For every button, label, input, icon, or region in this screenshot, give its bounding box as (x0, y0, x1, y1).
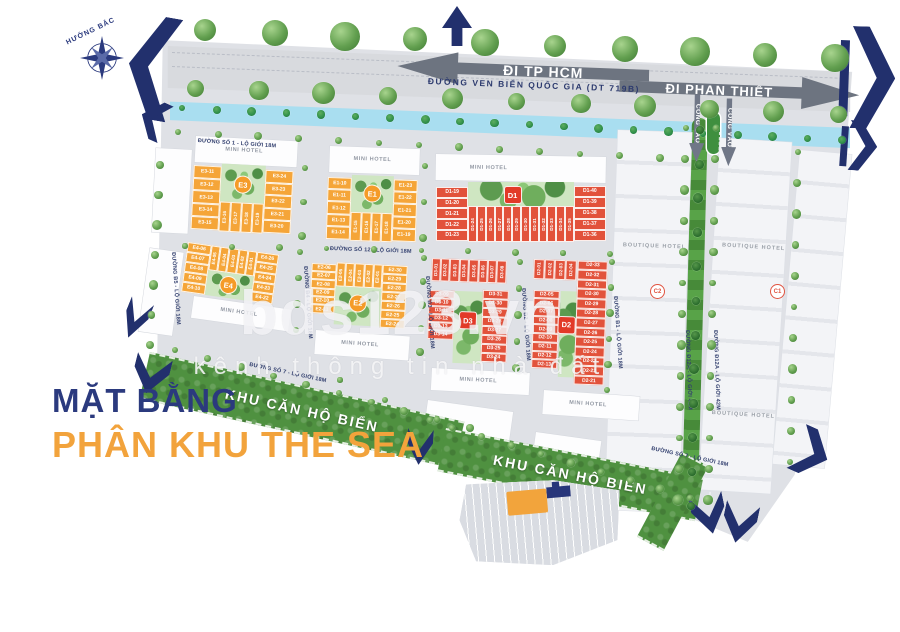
lot: E1-20 (392, 216, 417, 229)
tree (182, 243, 187, 248)
boutique-hotel-label: BOUTIQUE HOTEL (712, 410, 775, 420)
tree (442, 88, 463, 109)
lot: D2-21 (574, 375, 604, 386)
tree (146, 341, 155, 350)
tree (705, 465, 713, 473)
lot: D1-38 (574, 208, 606, 219)
tree (689, 364, 699, 374)
lot-label: E4-06 (192, 245, 206, 253)
lot-label: D1-33 (549, 218, 554, 231)
lot-label: E3-13 (199, 194, 213, 201)
lot-label: D3-01 (433, 264, 438, 277)
lot-group: D3-01D3-02D3-03D3-04D3-05D3-06D3-07D3-08 (431, 258, 507, 284)
tree (175, 129, 181, 135)
lot-label: E2-01 (375, 270, 381, 283)
lot-label: D1-24 (470, 218, 475, 231)
tree (421, 255, 427, 261)
hotel-label: MINI HOTEL (220, 307, 258, 318)
lot-label: D2-26 (584, 329, 598, 335)
tree (544, 35, 566, 57)
lot-label: D3-30 (488, 300, 502, 306)
tree (792, 241, 799, 248)
lot-label: E4-07 (191, 255, 205, 263)
lot: D2-13 (532, 359, 557, 369)
lot-label: E4-09 (188, 274, 202, 282)
tree (154, 191, 163, 200)
lot-label: D2-06 (539, 300, 553, 306)
tree (508, 93, 525, 110)
lot-label: D3-06 (480, 265, 485, 278)
tree (709, 248, 717, 256)
lot-group: E2-06E2-07E2-08E2-09E2-10E2-11 (309, 263, 337, 314)
lot-group: E1-15E1-16E1-17E1-18 (350, 212, 392, 242)
tree (421, 199, 428, 206)
lot-label: D2-21 (582, 377, 596, 383)
tree (179, 105, 186, 112)
tree (149, 280, 159, 290)
hotel-building: MINI HOTEL (436, 154, 606, 183)
tree (604, 361, 611, 368)
tree (300, 199, 307, 206)
minimap-highlight (506, 488, 548, 515)
tree (419, 234, 427, 242)
lot-label: E3-18 (244, 212, 250, 225)
lot: D1-28 (503, 206, 512, 242)
lot-label: E4-08 (189, 265, 203, 273)
lot: E3-20 (262, 220, 291, 234)
tree (376, 140, 382, 146)
lot-label: D1-38 (583, 210, 597, 216)
tree (753, 43, 777, 67)
lot-label: E4-04 (220, 253, 227, 266)
lot-label: D2-31 (585, 281, 599, 287)
tree (156, 161, 164, 169)
lot-label: E1-13 (332, 217, 346, 223)
tree (675, 465, 683, 473)
lot-label: D2-13 (537, 361, 551, 367)
lot-label: E1-12 (332, 205, 346, 211)
block-badge-D2: D2 (557, 315, 576, 334)
lot: D1-19 (436, 187, 468, 198)
lot-group: E2-05E2-04E2-03E2-02E2-01 (336, 263, 383, 289)
lot-group: E1-10E1-11E1-12E1-13E1-14 (326, 177, 352, 240)
lot: E1-23 (393, 179, 418, 192)
lot: D1-25 (477, 206, 486, 242)
tree (298, 232, 306, 240)
tree (734, 131, 742, 139)
tree (763, 101, 784, 122)
tree (609, 259, 615, 265)
tree (821, 44, 849, 72)
lot-label: D2-32 (586, 272, 600, 278)
tower-badge-c2: C2 (650, 284, 665, 299)
tree (526, 121, 533, 128)
tree (630, 126, 637, 133)
lot: D1-21 (436, 208, 468, 219)
tree (293, 300, 301, 308)
tree (700, 100, 718, 118)
block-E4: E4-06E4-07E4-08E4-09E4-10E4-05E4-04E4-03… (181, 242, 279, 304)
tree (689, 399, 697, 407)
lot: E4-22 (250, 291, 273, 304)
lot-label: D1-28 (505, 218, 510, 231)
lot-label: D2-07 (539, 309, 553, 315)
lot: D1-22 (436, 219, 468, 230)
lot-label: D1-32 (540, 218, 545, 231)
road-label-b2: ĐƯỜNG B2 - LỘ GIỚI 18M (520, 288, 531, 361)
lot-label: E3-20 (270, 223, 284, 230)
lot-group: D3-31D3-30D3-29D3-28D3-27D3-26D3-25D3-24 (480, 290, 509, 363)
lot-label: E4-10 (187, 284, 201, 292)
lot-label: D1-39 (583, 199, 597, 205)
lot-label: D2-11 (538, 343, 552, 349)
lot-label: D1-19 (445, 189, 459, 195)
tree (692, 262, 702, 272)
direction-label-phanthiet: ĐI PHAN THIẾT (665, 80, 773, 99)
tree (567, 459, 574, 466)
tree (560, 123, 568, 131)
lot-label: E3-12 (200, 181, 214, 188)
lot-label: D2-12 (538, 352, 552, 358)
block-badge-D1: D1 (504, 186, 522, 204)
lot-group: E3-11E3-12E3-13E3-14E3-15 (191, 165, 222, 230)
lot-label: D1-40 (583, 188, 597, 194)
plan-title: MẶT BẰNG PHÂN KHU THE SEA (52, 382, 424, 466)
nav-arrow (849, 26, 897, 129)
tree (471, 29, 499, 57)
lot-label: D1-25 (479, 218, 484, 231)
lot-label: E1-15 (353, 220, 358, 232)
tree (416, 142, 423, 149)
lot: D1-40 (574, 186, 606, 197)
tree (215, 131, 222, 138)
block-D2: D2-01D2-02D2-03D2-04D2-05D2-06D2-07D2-08… (529, 256, 607, 389)
lot-label: D3-04 (461, 265, 466, 278)
tree (293, 327, 299, 333)
lot-label: E3-17 (233, 211, 239, 224)
plan-title-line2: PHÂN KHU THE SEA (52, 424, 424, 466)
tree (514, 338, 520, 344)
lot-label: D1-36 (583, 232, 597, 238)
tree (677, 340, 686, 349)
tree (673, 495, 682, 504)
tree (283, 109, 290, 116)
site-plan-map: MINI HOTELMINI HOTELMINI HOTELMINI HOTEL… (0, 0, 900, 632)
lot-label: E2-29 (388, 276, 402, 283)
lot-label: D3-09 (435, 291, 449, 297)
lot-label: E1-17 (374, 221, 379, 233)
tree (677, 372, 684, 379)
tree (676, 435, 683, 442)
tree (465, 248, 471, 254)
lot-label: E2-27 (387, 294, 401, 301)
tree (204, 355, 211, 362)
lot-label: E4-26 (260, 254, 274, 262)
tree (434, 416, 440, 422)
tree (330, 22, 359, 51)
lot-label: E3-14 (199, 207, 213, 214)
plan-title-line1: MẶT BẰNG (52, 382, 424, 420)
lot: E2-24 (380, 319, 405, 329)
lot: D3-08 (497, 260, 507, 284)
tree (270, 373, 276, 379)
tree (514, 311, 522, 319)
tree (706, 435, 713, 442)
hotel-label: MINI HOTEL (459, 376, 497, 384)
hotel-label: MINI HOTEL (569, 400, 607, 409)
tree (607, 251, 613, 257)
tree (676, 403, 684, 411)
lot: D1-26 (486, 206, 495, 242)
lot-label: D2-09 (539, 326, 553, 332)
tree (496, 146, 502, 152)
lot-label: D2-03 (558, 264, 563, 277)
lot-label: E2-08 (316, 281, 330, 288)
lot: D3-24 (480, 353, 507, 363)
compass-rose-icon (80, 36, 124, 80)
lot-label: E1-10 (333, 180, 347, 186)
lot-group: E3-16E3-17E3-18E3-19 (218, 201, 264, 233)
hotel-building: MINI HOTEL (314, 330, 409, 360)
tree (213, 106, 221, 114)
lot: E3-15 (191, 216, 220, 230)
nav-arrow (719, 500, 761, 546)
lot-label: E4-23 (256, 284, 270, 292)
lot-label: D1-35 (567, 218, 572, 231)
lot-label: E4-25 (259, 264, 273, 272)
lot-label: E2-07 (317, 272, 331, 279)
lot: D1-23 (436, 230, 468, 241)
lot-label: D2-25 (583, 339, 597, 345)
lot-label: E1-16 (363, 221, 368, 233)
tree (678, 310, 686, 318)
compass: HƯỚNG BẮC (62, 20, 142, 80)
lot-label: D3-10 (435, 299, 449, 305)
lot-label: D2-08 (539, 317, 553, 323)
tree (692, 297, 700, 305)
lot: D1-36 (574, 230, 606, 241)
tree (512, 249, 519, 256)
lot: E1-13 (326, 214, 351, 227)
tree (688, 433, 698, 443)
lot-label: E3-19 (255, 212, 261, 225)
lot-group: D1-24D1-25D1-26D1-27D1-28D1-29D1-30D1-31… (468, 206, 573, 242)
lot-label: E2-11 (315, 306, 328, 313)
lot: D1-32 (539, 206, 548, 242)
tree (449, 425, 455, 431)
block-badge-D3: D3 (459, 312, 478, 331)
tree (455, 143, 463, 151)
minimap-logo-mark (546, 481, 571, 499)
lot: D1-30 (521, 206, 530, 242)
tree (792, 209, 801, 218)
lot-label: D3-25 (487, 345, 501, 351)
hotel-building: MINI HOTEL (329, 146, 420, 175)
lot-label: E2-28 (387, 285, 401, 292)
lot-label: E2-04 (347, 269, 353, 282)
tree (768, 132, 777, 141)
tree (379, 87, 397, 105)
lot-label: E4-05 (211, 252, 218, 265)
lot-label: D1-30 (523, 218, 528, 231)
hotel-label: MINI HOTEL (353, 156, 391, 163)
lot-group: D2-01D2-02D2-03D2-04 (533, 259, 577, 281)
lot-label: D3-27 (487, 327, 501, 333)
lot-label: D2-02 (547, 263, 552, 276)
lot-label: D3-26 (487, 336, 501, 342)
lot: D1-24 (468, 206, 477, 242)
lot: D1-34 (556, 206, 565, 242)
tree (713, 125, 720, 132)
lot-label: D1-34 (558, 218, 563, 231)
lot-label: E2-05 (338, 268, 344, 281)
tree (703, 495, 712, 504)
tree (594, 124, 603, 133)
hotel-building: MINI HOTEL (431, 368, 530, 395)
lot: D1-37 (574, 219, 606, 230)
tree (152, 220, 162, 230)
tree (804, 135, 811, 142)
lot: D1-31 (530, 206, 539, 242)
lot-label: D1-27 (497, 218, 502, 231)
lot-label: D3-11 (435, 307, 449, 313)
tree (560, 250, 566, 256)
tree (710, 217, 717, 224)
tree (317, 110, 325, 118)
lot-label: E1-11 (333, 192, 346, 198)
lot-label: E3-24 (273, 173, 287, 180)
lot-label: E2-26 (386, 303, 400, 310)
lot: D2-02 (544, 259, 555, 280)
tree (696, 126, 704, 134)
lot: D2-01 (533, 259, 544, 280)
tree (710, 185, 719, 194)
tree (691, 331, 700, 340)
lot-label: D3-28 (488, 318, 502, 324)
block-E1: E1-10E1-11E1-12E1-13E1-14E1-15E1-16E1-17… (326, 174, 418, 243)
tower-badge-c1: C1 (770, 284, 785, 299)
lot-label: D2-30 (585, 291, 599, 297)
tree (324, 246, 330, 252)
tree (172, 347, 178, 353)
tree (536, 148, 543, 155)
lot-label: E3-22 (271, 198, 285, 205)
tree (422, 163, 428, 169)
lot-group: D1-19D1-20D1-21D1-22D1-23 (436, 187, 468, 241)
lot-label: E2-03 (356, 269, 362, 282)
lot-label: E1-14 (331, 230, 345, 236)
tree (683, 125, 690, 132)
lot-label: D3-02 (443, 264, 448, 277)
lot-label: D3-03 (452, 264, 457, 277)
tree (512, 364, 519, 371)
tree (656, 154, 664, 162)
lot-label: E2-24 (385, 320, 399, 327)
tree (490, 119, 498, 127)
lot-label: D2-28 (584, 310, 598, 316)
lot-group: D2-33D2-32D2-31D2-30D2-29D2-28D2-27D2-26… (574, 260, 608, 386)
lot-label: D3-14 (434, 332, 448, 338)
lot-label: E3-11 (201, 168, 214, 175)
lot-label: E3-21 (271, 211, 285, 218)
lot-label: D2-24 (583, 349, 597, 355)
lot-label: E4-01 (248, 257, 255, 270)
tree (456, 118, 463, 125)
tree (680, 37, 709, 66)
block-E3: E3-11E3-12E3-13E3-14E3-15E3-16E3-17E3-18… (190, 162, 293, 235)
lot-label: D2-01 (536, 263, 541, 276)
tree (680, 185, 689, 194)
block-D3: D3-01D3-02D3-03D3-04D3-05D3-06D3-07D3-08… (426, 258, 510, 367)
lot-group: E1-23E1-22E1-21E1-20E1-19 (391, 179, 417, 242)
lot: E2-11 (309, 304, 334, 314)
lot-label: E1-20 (397, 220, 411, 226)
block-E2: E2-06E2-07E2-08E2-09E2-10E2-11E2-05E2-04… (309, 260, 408, 331)
lot: E1-10 (327, 177, 352, 190)
tree (788, 396, 795, 403)
tree (312, 82, 335, 105)
tree (612, 36, 638, 62)
lot-label: E2-25 (386, 312, 400, 319)
lot-label: D2-27 (584, 320, 598, 326)
tree (604, 387, 610, 393)
tree (680, 217, 687, 224)
lot-label: E2-09 (316, 289, 330, 296)
tree (297, 249, 303, 255)
tree (276, 244, 283, 251)
lot: E1-22 (393, 191, 418, 204)
lot-label: E3-16 (222, 210, 228, 223)
tree (352, 113, 359, 120)
lot-label: D1-23 (445, 232, 459, 238)
tree (403, 27, 427, 51)
tree (634, 95, 657, 118)
lot-group: E3-24E3-23E3-22E3-21E3-20 (262, 170, 293, 234)
tree (830, 106, 847, 123)
tree (335, 137, 342, 144)
lot-label: D1-29 (514, 218, 519, 231)
lot-label: D1-22 (445, 222, 459, 228)
lot-label: D2-23 (583, 358, 597, 364)
tree (418, 301, 426, 309)
lot: E1-12 (327, 201, 352, 214)
hotel-building: MINI HOTEL (191, 296, 291, 331)
lot-label: D3-31 (489, 291, 503, 297)
lot-label: E2-06 (317, 264, 331, 271)
lot: E1-14 (326, 226, 351, 239)
lot-label: E4-24 (258, 274, 272, 282)
tree (627, 477, 634, 484)
boutique-hotel-label: BOUTIQUE HOTEL (623, 242, 686, 250)
tree (517, 259, 523, 265)
tree (688, 468, 696, 476)
lot-label: E1-18 (384, 221, 389, 233)
tree (466, 424, 473, 431)
tree (249, 81, 269, 101)
lot-group: D2-05D2-06D2-07D2-08D2-09D2-10D2-11D2-12… (532, 290, 560, 369)
lot-label: D2-10 (538, 335, 552, 341)
lot: D1-39 (574, 197, 606, 208)
lot-label: D2-04 (568, 264, 573, 277)
lot: E4-10 (181, 282, 206, 295)
lot-label: E4-03 (229, 254, 236, 267)
lot: D1-33 (547, 206, 556, 242)
lot-label: D3-13 (434, 324, 448, 330)
boutique-hotel-label: BOUTIQUE HOTEL (722, 242, 785, 252)
tree (695, 160, 704, 169)
lot-label: D1-26 (488, 218, 493, 231)
lot-label: D3-29 (488, 309, 502, 315)
